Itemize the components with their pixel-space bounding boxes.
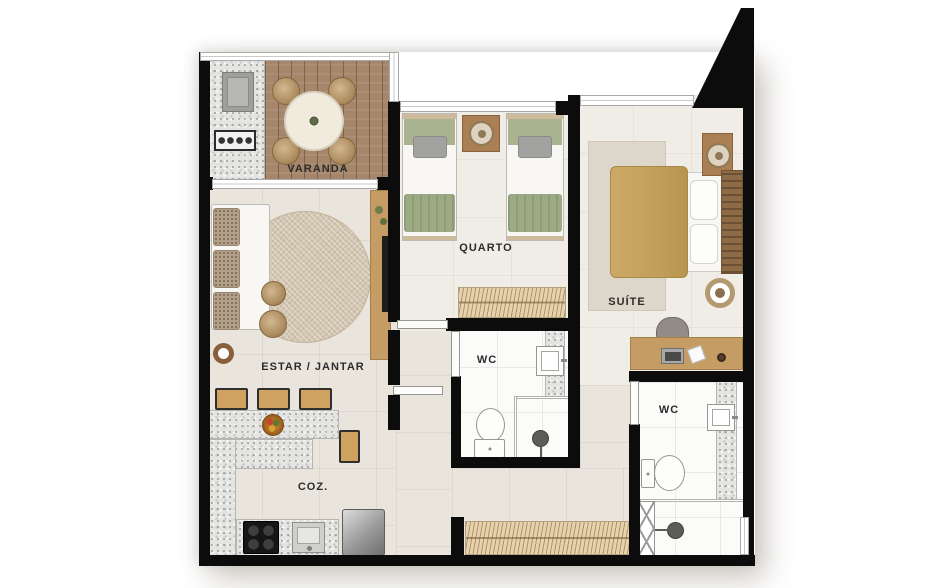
bar-stool	[257, 388, 290, 410]
table-lamp	[708, 145, 729, 166]
door-wc-social	[451, 331, 460, 377]
sofa-cushion	[213, 292, 240, 330]
side-table	[213, 343, 234, 364]
twin-bed	[402, 113, 457, 241]
laptop	[661, 348, 684, 364]
basin-inner	[541, 351, 559, 371]
suite-window	[580, 95, 694, 106]
bar-stool	[299, 388, 332, 410]
refrigerator	[342, 509, 385, 556]
quarto-window	[400, 101, 556, 112]
wall-wc-suite-left	[629, 424, 640, 566]
pillow	[690, 180, 718, 220]
wall-corridor-stub	[451, 517, 464, 566]
sofa-cushion	[213, 208, 240, 246]
wall-quarto-window-stub	[556, 101, 570, 115]
flush-button	[647, 472, 650, 475]
wall-quarto-bottom	[446, 318, 580, 331]
pillow	[413, 136, 447, 158]
nightstand	[462, 115, 500, 152]
hallway-floor	[396, 318, 452, 555]
kitchen-sink	[292, 522, 325, 553]
pouf	[259, 310, 287, 338]
wall-wc-social-suite	[568, 331, 580, 468]
table-lamp	[471, 123, 492, 144]
pouf-center	[715, 288, 725, 298]
pouf	[261, 281, 286, 306]
support-sink	[222, 72, 254, 112]
bed-blanket	[404, 194, 455, 232]
table-centerpiece	[310, 117, 319, 126]
label-cozinha: COZ.	[298, 481, 328, 493]
wall-left	[199, 52, 210, 566]
toilet-bowl	[476, 408, 505, 442]
sink-basin	[297, 527, 320, 544]
plant	[380, 218, 387, 225]
sofa-cushion	[213, 250, 240, 288]
shower-partition	[514, 396, 574, 399]
basin-inner	[712, 409, 730, 426]
door-quarto-hall	[397, 320, 448, 329]
faucet	[732, 416, 738, 419]
wall-bottom	[199, 555, 755, 566]
shower-arm	[655, 529, 668, 531]
wall-varanda-stub-left	[199, 177, 213, 190]
wall-wc-suite-top	[629, 371, 744, 382]
bar-stool	[215, 388, 248, 410]
footboard	[507, 236, 563, 240]
double-bed-blanket	[610, 166, 688, 278]
pillow	[690, 224, 718, 264]
footboard	[403, 236, 456, 240]
washbasin	[536, 346, 564, 376]
toilet-tank	[641, 459, 655, 488]
shower-box-door	[638, 501, 655, 556]
shower-head	[667, 522, 684, 539]
cup	[717, 353, 726, 362]
wall-wc-social-bottom	[451, 457, 574, 468]
corridor-wardrobe	[465, 521, 632, 555]
faucet	[561, 359, 567, 362]
grill	[214, 130, 256, 151]
wall-hall-stub-lower	[388, 395, 400, 430]
wall-estar-quarto	[388, 101, 400, 322]
sink-basin	[227, 77, 249, 107]
flush-button	[488, 447, 491, 450]
cooktop	[243, 521, 279, 554]
faucet	[307, 546, 312, 551]
suite-pouf	[705, 278, 735, 308]
varanda-side-rail	[389, 52, 399, 102]
toilet-bowl	[654, 455, 685, 491]
wc-suite-window	[740, 517, 749, 555]
suite-headboard	[721, 170, 743, 274]
shower-partition	[514, 396, 517, 460]
pillow	[518, 136, 552, 158]
plant	[375, 206, 383, 214]
fruit-bowl	[262, 414, 284, 436]
quarto-wardrobe	[458, 287, 566, 318]
label-suite: SUÍTE	[608, 296, 645, 308]
wall-hall-stub	[388, 330, 400, 385]
shower-head	[532, 430, 549, 447]
suite-passage-floor	[580, 385, 632, 470]
bar-stool	[339, 430, 360, 463]
label-wc-social: WC	[477, 354, 497, 366]
counter-left-leg	[208, 439, 236, 557]
floor-plan: VARANDA QUARTO SUÍTE ESTAR / JANTAR COZ.…	[0, 0, 952, 588]
wall-wc-social-left	[451, 376, 461, 468]
door-wc-suite	[630, 381, 639, 425]
round-dining-table	[284, 91, 344, 151]
washbasin	[707, 404, 735, 431]
desk	[630, 337, 743, 370]
laptop-keyboard	[665, 352, 681, 361]
label-varanda: VARANDA	[287, 163, 348, 175]
shower-divider	[640, 499, 744, 502]
varanda-sliding-door	[212, 179, 378, 189]
label-estar-jantar: ESTAR / JANTAR	[261, 361, 364, 373]
label-wc-suite: WC	[659, 404, 679, 416]
wall-right	[743, 96, 754, 566]
varanda-railing	[200, 52, 391, 61]
door-hall-lower	[393, 386, 443, 395]
bed-blanket	[508, 194, 562, 232]
wall-quarto-suite	[568, 95, 580, 331]
label-quarto: QUARTO	[459, 242, 512, 254]
toilet-tank	[474, 439, 505, 458]
wc-suite-vanity	[716, 380, 737, 500]
twin-bed	[506, 113, 564, 241]
